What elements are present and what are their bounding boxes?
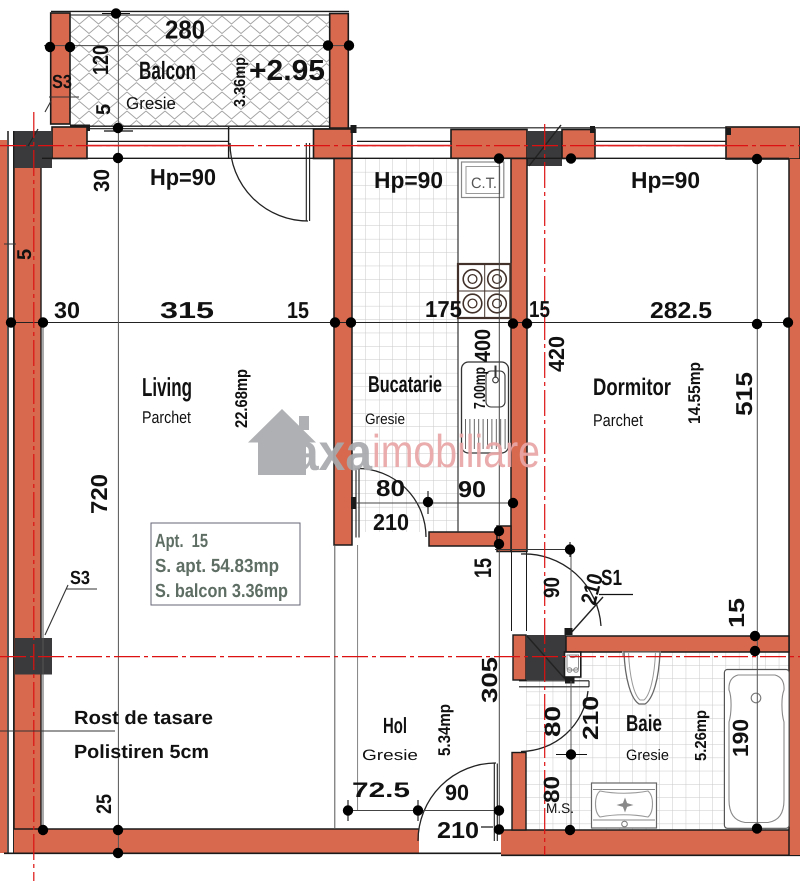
svg-text:imobiliare: imobiliare: [372, 425, 540, 477]
svg-text:Polistiren 5cm: Polistiren 5cm: [74, 742, 209, 763]
svg-text:22.68mp: 22.68mp: [232, 369, 251, 428]
svg-text:5: 5: [14, 249, 36, 260]
svg-text:Parchet: Parchet: [142, 408, 191, 427]
svg-text:Parchet: Parchet: [593, 411, 643, 430]
svg-text:90: 90: [458, 476, 486, 502]
svg-text:5.26mp: 5.26mp: [693, 710, 710, 761]
svg-text:Balcon: Balcon: [139, 57, 196, 85]
svg-text:282.5: 282.5: [650, 297, 712, 323]
svg-text:90: 90: [445, 780, 469, 805]
svg-text:72.5: 72.5: [352, 779, 410, 802]
svg-text:15: 15: [287, 297, 309, 323]
svg-text:420: 420: [544, 336, 569, 372]
svg-text:M.S.: M.S.: [546, 800, 574, 816]
svg-text:7.00mp: 7.00mp: [472, 367, 489, 409]
svg-text:5: 5: [93, 104, 115, 115]
svg-text:30: 30: [54, 297, 80, 323]
svg-text:305: 305: [477, 657, 502, 703]
svg-text:90: 90: [539, 577, 564, 598]
svg-text:+2.95: +2.95: [249, 55, 325, 87]
svg-text:S3: S3: [70, 568, 90, 589]
svg-text:515: 515: [731, 372, 757, 416]
svg-text:175: 175: [425, 296, 462, 322]
svg-text:120: 120: [88, 45, 113, 75]
svg-text:210: 210: [437, 817, 479, 843]
svg-text:80: 80: [540, 706, 565, 737]
svg-text:210: 210: [373, 509, 409, 535]
svg-text:190: 190: [728, 719, 753, 757]
svg-text:25: 25: [93, 794, 116, 814]
svg-text:C.T.: C.T.: [471, 175, 497, 192]
svg-text:30: 30: [89, 169, 114, 192]
svg-text:15: 15: [529, 296, 550, 322]
svg-text:Hp=90: Hp=90: [150, 164, 216, 190]
svg-text:315: 315: [160, 297, 214, 323]
svg-text:Rost de tasare: Rost de tasare: [74, 708, 213, 729]
svg-text:Gresie: Gresie: [126, 94, 176, 113]
svg-text:280: 280: [165, 15, 205, 45]
svg-text:400: 400: [470, 329, 495, 362]
svg-text:80: 80: [539, 776, 564, 803]
svg-text:Apt. 15: Apt. 15: [155, 531, 208, 552]
svg-text:3.36mp: 3.36mp: [232, 57, 249, 107]
svg-text:210: 210: [578, 696, 603, 740]
svg-text:Hol: Hol: [383, 713, 407, 738]
svg-text:Gresie: Gresie: [362, 747, 418, 764]
svg-text:Dormitor: Dormitor: [593, 374, 671, 401]
svg-text:S1: S1: [601, 565, 622, 590]
svg-text:S. balcon 3.36mp: S. balcon 3.36mp: [155, 581, 288, 602]
svg-text:Gresie: Gresie: [626, 747, 669, 764]
svg-text:15: 15: [724, 598, 749, 628]
svg-text:S. apt. 54.83mp: S. apt. 54.83mp: [155, 556, 279, 577]
svg-text:Hp=90: Hp=90: [374, 167, 443, 193]
svg-text:5.34mp: 5.34mp: [435, 704, 454, 756]
svg-text:80: 80: [376, 475, 405, 501]
svg-text:Bucatarie: Bucatarie: [368, 371, 442, 397]
svg-text:14.55mp: 14.55mp: [685, 362, 704, 424]
svg-text:Hp=90: Hp=90: [631, 167, 700, 193]
svg-text:axa: axa: [292, 424, 373, 482]
svg-text:15: 15: [470, 558, 497, 578]
svg-text:S3: S3: [52, 72, 72, 93]
svg-text:Living: Living: [142, 372, 192, 402]
svg-text:720: 720: [86, 474, 112, 514]
svg-text:Baie: Baie: [626, 710, 662, 736]
